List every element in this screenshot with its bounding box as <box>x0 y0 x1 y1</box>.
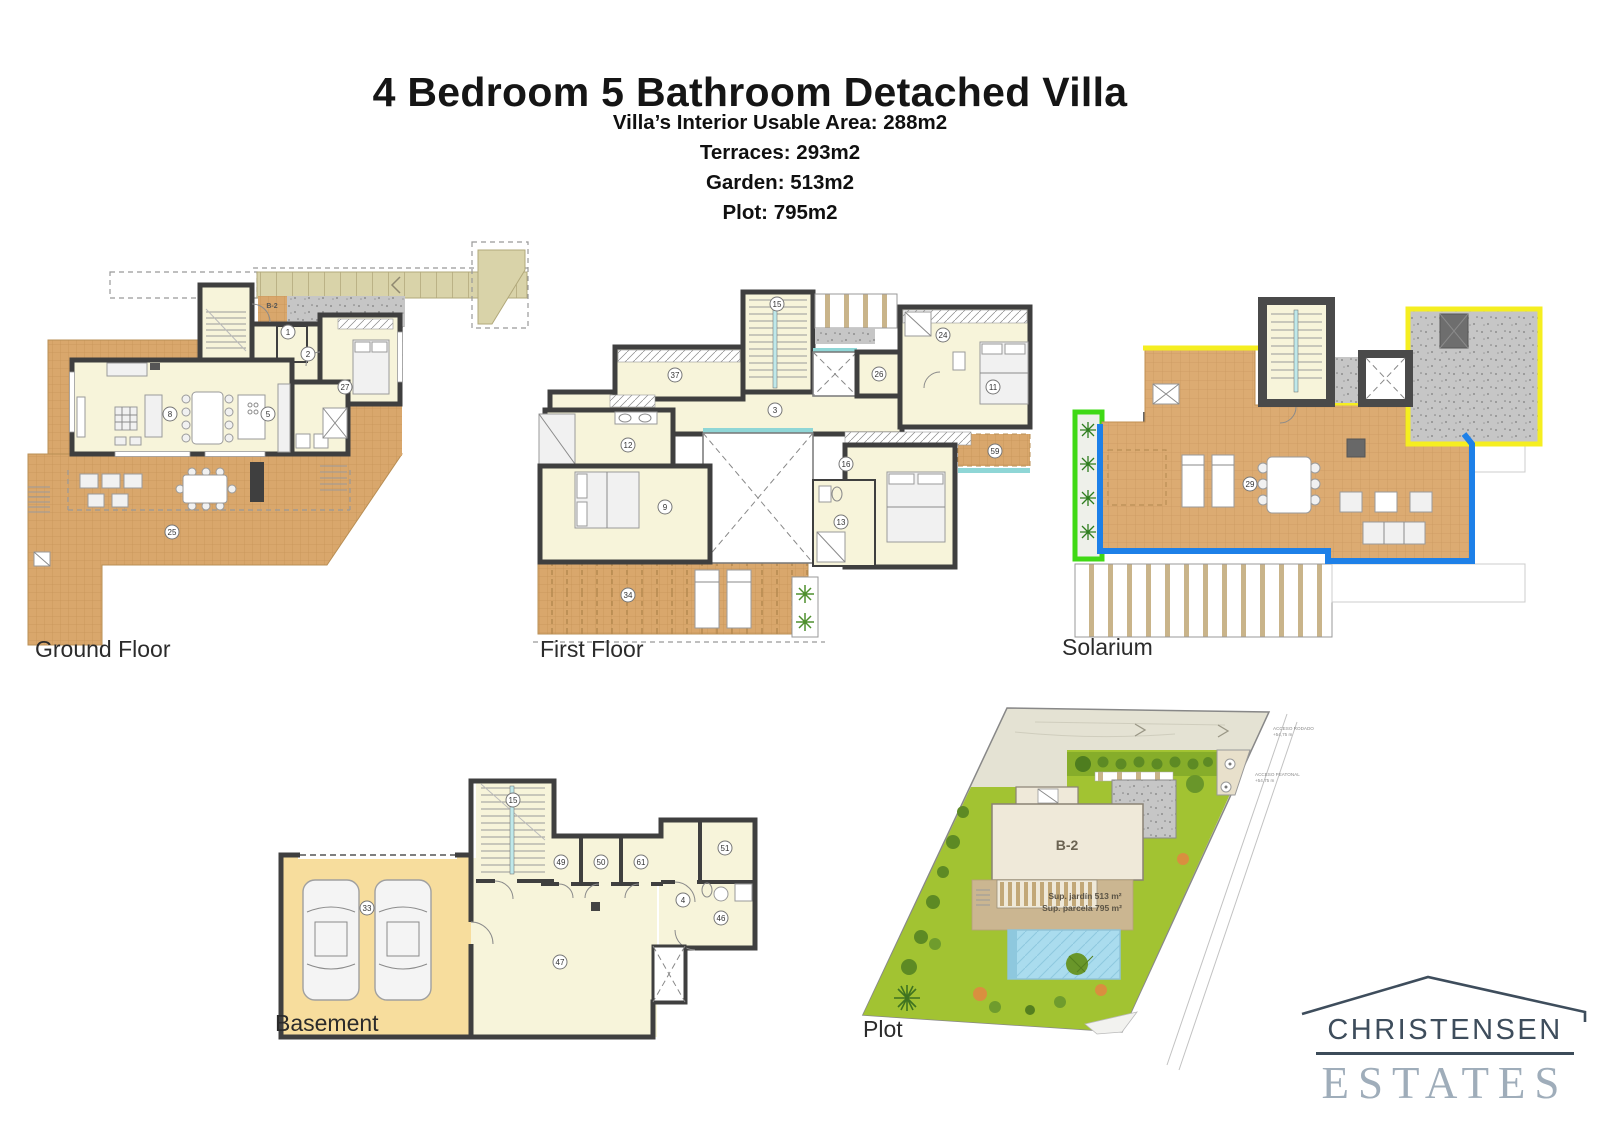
wardrobe <box>610 395 655 407</box>
agency-logo: CHRISTENSEN ESTATES <box>1280 970 1600 1109</box>
unit-tag-ground: B-2 <box>266 303 277 310</box>
unit-tag-plot: B-2 <box>1056 837 1079 853</box>
elevator-shaft <box>653 946 685 1002</box>
svg-text:27: 27 <box>341 383 350 392</box>
room-number: 9 <box>658 500 672 514</box>
gravel-strip <box>1335 357 1358 403</box>
swimming-pool <box>1008 930 1120 979</box>
room-number: 46 <box>714 911 728 925</box>
svg-text:46: 46 <box>717 914 726 923</box>
room-number: 37 <box>668 368 682 382</box>
room-number: 2 <box>301 347 315 361</box>
svg-text:25: 25 <box>168 528 177 537</box>
support-column <box>591 902 600 911</box>
entrance-gravel-roof <box>815 328 875 344</box>
access-labels: ACCESO RODADO +54,75 m ACCESO PEATONAL +… <box>1255 726 1314 783</box>
kitchen-island <box>238 395 265 439</box>
svg-text:34: 34 <box>624 591 633 600</box>
plan-label-plot: Plot <box>863 1016 903 1043</box>
svg-text:13: 13 <box>837 518 846 527</box>
laundry-shower <box>323 408 347 438</box>
svg-text:4: 4 <box>681 896 686 905</box>
svg-text:49: 49 <box>557 858 566 867</box>
room-number: 16 <box>839 457 853 471</box>
room-number: 1 <box>281 325 295 339</box>
room-number: 47 <box>553 955 567 969</box>
room-number: 15 <box>770 297 784 311</box>
gravel-roof <box>1408 309 1540 444</box>
room-number: 29 <box>1243 477 1257 491</box>
plot-area-label: Sup. parcela 795 m² <box>1042 903 1122 913</box>
garden-area-label: Sup. jardín 513 m² <box>1048 891 1121 901</box>
plot-plan: B-2 Sup. jardín 513 m² Sup. parcela 795 … <box>845 692 1305 1072</box>
svg-text:15: 15 <box>773 300 782 309</box>
solarium-plan: 29 <box>1045 272 1600 647</box>
room-number: 11 <box>986 380 1000 394</box>
brochure-page: 4 Bedroom 5 Bathroom Detached Villa Vill… <box>0 0 1600 1131</box>
plan-label-basement: Basement <box>275 1010 379 1037</box>
svg-text:33: 33 <box>363 904 372 913</box>
outdoor-shower-icon <box>1153 384 1179 404</box>
wardrobe <box>338 319 393 329</box>
bed-ground <box>353 340 389 394</box>
svg-text:16: 16 <box>842 460 851 469</box>
solarium-pergola <box>1075 564 1525 637</box>
svg-text:15: 15 <box>509 796 518 805</box>
first-floor-plan: 15 37 26 3 24 11 12 9 16 13 34 59 <box>515 232 1045 644</box>
svg-text:26: 26 <box>875 370 884 379</box>
svg-text:+54,75 m: +54,75 m <box>1273 732 1292 737</box>
room-number: 5 <box>261 407 275 421</box>
svg-text:8: 8 <box>168 410 173 419</box>
property-stats: Villa’s Interior Usable Area: 288m2 Terr… <box>0 108 1560 228</box>
room-number: 15 <box>506 793 520 807</box>
roof-dining-set <box>1258 457 1320 513</box>
room-number: 13 <box>834 515 848 529</box>
svg-text:9: 9 <box>663 503 668 512</box>
plan-label-ground-floor: Ground Floor <box>35 636 171 663</box>
double-height-void <box>703 428 813 563</box>
svg-text:ACCESO RODADO: ACCESO RODADO <box>1273 726 1314 731</box>
ground-floor-plan: B-2 <box>20 232 530 632</box>
room-number: 8 <box>163 407 177 421</box>
stat-terraces: Terraces: 293m2 <box>0 138 1560 168</box>
svg-text:5: 5 <box>266 410 271 419</box>
car-icon <box>375 880 431 1000</box>
svg-text:12: 12 <box>624 441 633 450</box>
elevator-shaft <box>1358 350 1413 407</box>
bathroom-12 <box>539 410 673 466</box>
bbq-counter <box>250 462 264 502</box>
first-floor-terrace <box>533 554 825 642</box>
basement-plan: 15 33 49 50 61 51 4 46 47 <box>255 732 760 1032</box>
svg-text:11: 11 <box>989 383 998 392</box>
bedroom-11-suite <box>900 307 1030 427</box>
solarium-stair-tower <box>1258 297 1335 423</box>
room-number: 61 <box>634 855 648 869</box>
room-number: 34 <box>621 588 635 602</box>
svg-text:29: 29 <box>1246 480 1255 489</box>
room-number: 26 <box>872 367 886 381</box>
bedroom-9 <box>540 466 710 562</box>
room-number: 49 <box>554 855 568 869</box>
logo-divider <box>1316 1052 1574 1055</box>
room-number: 25 <box>165 525 179 539</box>
svg-text:51: 51 <box>721 844 730 853</box>
chimney <box>1347 439 1365 457</box>
room-number: 50 <box>594 855 608 869</box>
void-skylight <box>813 348 857 396</box>
svg-text:61: 61 <box>637 858 646 867</box>
room-number: 59 <box>988 444 1002 458</box>
svg-text:+54,75 m: +54,75 m <box>1255 778 1274 783</box>
logo-name: CHRISTENSEN <box>1280 1014 1600 1047</box>
entrance-pergola <box>815 294 897 328</box>
svg-text:1: 1 <box>286 328 291 337</box>
stat-interior-area: Villa’s Interior Usable Area: 288m2 <box>0 108 1560 138</box>
room-number: 51 <box>718 841 732 855</box>
svg-text:37: 37 <box>671 371 680 380</box>
room-number: 27 <box>338 380 352 394</box>
svg-text:47: 47 <box>556 958 565 967</box>
svg-text:59: 59 <box>991 447 1000 456</box>
svg-text:50: 50 <box>597 858 606 867</box>
stat-plot: Plot: 795m2 <box>0 198 1560 228</box>
plan-label-first-floor: First Floor <box>540 636 644 663</box>
svg-text:24: 24 <box>939 331 948 340</box>
svg-text:2: 2 <box>306 350 311 359</box>
room-number: 4 <box>676 893 690 907</box>
svg-text:ACCESO PEATONAL: ACCESO PEATONAL <box>1255 772 1300 777</box>
stat-garden: Garden: 513m2 <box>0 168 1560 198</box>
car-icon <box>303 880 359 1000</box>
wardrobe <box>618 350 740 362</box>
room-number: 12 <box>621 438 635 452</box>
room-number: 3 <box>768 403 782 417</box>
room-number: 33 <box>360 901 374 915</box>
svg-text:3: 3 <box>773 406 778 415</box>
pedestrian-entrance-pad <box>1217 750 1250 795</box>
room-number: 24 <box>936 328 950 342</box>
plan-label-solarium: Solarium <box>1062 634 1153 661</box>
logo-type: ESTATES <box>1280 1057 1600 1109</box>
